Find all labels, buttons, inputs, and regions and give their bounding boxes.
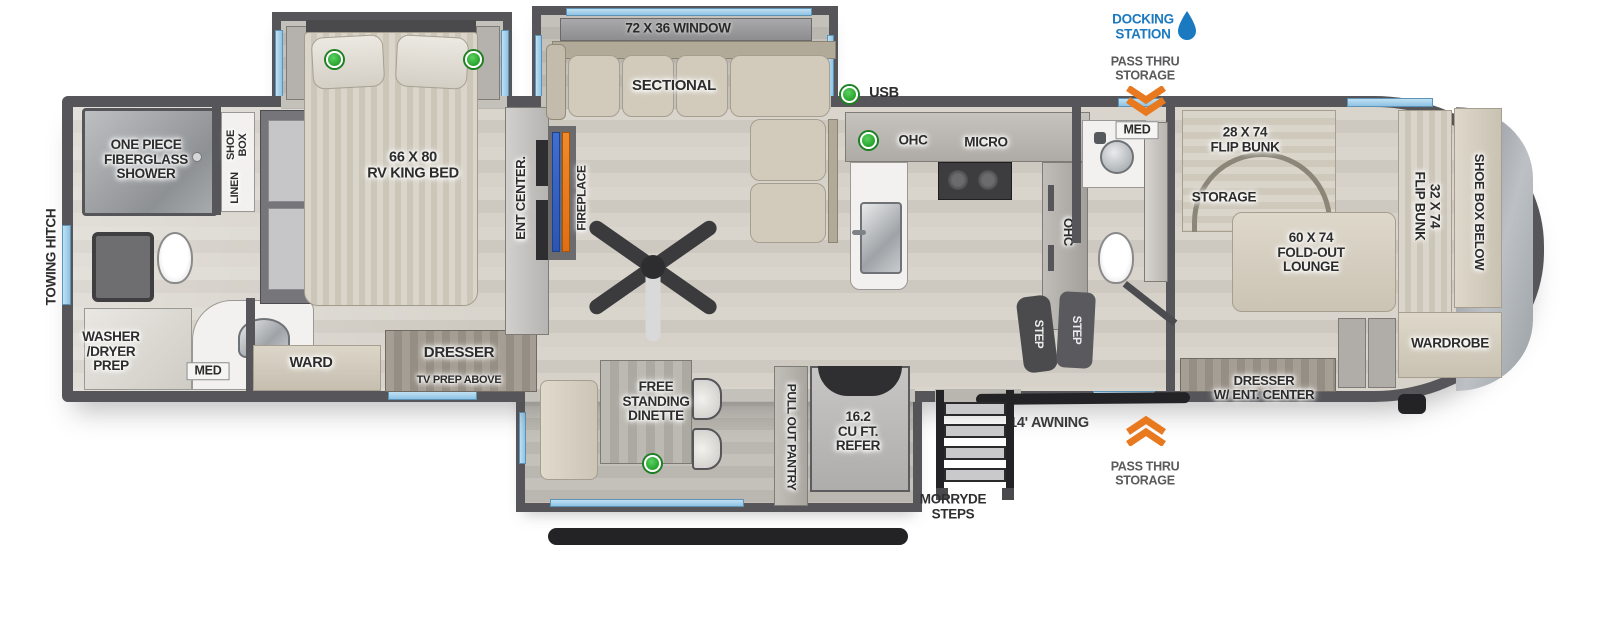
sectional-chaise-edge	[828, 119, 838, 243]
ohc-dot	[860, 132, 877, 149]
morryde-steps-rail-right	[1006, 390, 1014, 488]
sectional-chaise1	[750, 119, 826, 181]
midbath-left-wall	[1072, 107, 1081, 243]
stabilizer-foot	[1398, 394, 1426, 414]
morryde-step-tread3	[944, 446, 1006, 460]
dresser-label-line2: TV PREP ABOVE	[417, 375, 502, 387]
sectional-armrest	[546, 44, 566, 120]
fireplace-flame-strip	[562, 132, 570, 252]
living-window-top	[566, 8, 812, 16]
pass-thru-bottom-label: PASS THRU STORAGE	[1111, 461, 1180, 488]
kitchen-sink	[860, 202, 902, 274]
washer-dryer-label: WASHER /DRYER PREP	[82, 330, 139, 374]
step2-label: STEP	[1070, 316, 1082, 345]
sectional-chaise2	[750, 183, 826, 243]
bunkroom-top-window	[1347, 98, 1433, 107]
usb-dot	[841, 86, 858, 103]
kitchen-faucet	[852, 230, 866, 235]
awning-bar-left	[548, 528, 908, 545]
side-ohc-handle2	[1048, 245, 1054, 271]
docking-station-label: DOCKING STATION	[1112, 12, 1174, 41]
morryde-steps-label: MORRYDE STEPS	[920, 492, 986, 521]
refer-label: 16.2 CU FT. REFER	[836, 410, 880, 454]
bath-bedroom-wall-upper	[212, 107, 221, 215]
living-window-left	[535, 35, 542, 100]
dresser-tv-label: DRESSER TV PREP ABOVE	[417, 330, 502, 402]
bed-usb-dot-left	[326, 51, 343, 68]
pass-thru-up-arrow-icon	[1124, 414, 1168, 446]
shower-drain	[192, 152, 202, 162]
flip-bunk-28-label: 28 X 74 FLIP BUNK	[1210, 125, 1279, 154]
dresser-label-line1: DRESSER	[417, 345, 502, 361]
wardrobe-label: WARDROBE	[1411, 337, 1489, 352]
mid-med-label: MED	[1116, 121, 1159, 139]
king-bed-label: 66 X 80 RV KING BED	[367, 150, 459, 181]
pillow-left	[311, 34, 386, 90]
step1-label: STEP	[1032, 320, 1044, 349]
ent-center-component	[536, 200, 548, 260]
bunkroom-cabinet-door1	[1338, 318, 1366, 388]
dresser-ent-label: DRESSER W/ ENT. CENTER	[1214, 374, 1315, 402]
morryde-step-tread2	[944, 424, 1006, 438]
mid-toilet	[1098, 232, 1134, 284]
water-drop-icon	[1176, 10, 1198, 42]
micro-label: MICRO	[964, 136, 1008, 151]
rear-toilet	[157, 232, 193, 284]
dinette-label: FREE STANDING DINETTE	[622, 380, 689, 424]
dinette-window-left	[519, 412, 526, 464]
morryde-step-tread1	[944, 402, 1006, 416]
sectional-corner	[730, 55, 830, 117]
ohc-top-label: OHC	[898, 134, 927, 149]
shower-label: ONE PIECE FIBERGLASS SHOWER	[104, 138, 188, 182]
dinette-bench	[540, 380, 598, 480]
dinette-chair2	[692, 428, 722, 470]
pillow-right	[395, 34, 470, 90]
bath-window-frame	[92, 232, 154, 302]
pass-thru-down-arrow-icon	[1124, 86, 1168, 118]
ent-center-label: ENT CENTER.	[514, 156, 528, 239]
dinette-window-bottom	[550, 499, 744, 507]
bedroom-window-right	[501, 30, 509, 100]
dinette-usb-dot	[644, 455, 661, 472]
sectional-label: SECTIONAL	[632, 78, 716, 94]
dinette-chair1	[692, 378, 722, 420]
fan-hub	[641, 255, 665, 279]
rear-med-label: MED	[187, 362, 230, 380]
bed-usb-dot-right	[465, 51, 482, 68]
stove-burner1	[948, 170, 968, 190]
rear-wall-window	[62, 225, 71, 305]
storage-label: STORAGE	[1192, 191, 1256, 206]
ent-center-tv	[536, 140, 548, 186]
awning-label: 14' AWNING	[1009, 416, 1089, 432]
morryde-steps-rail-left	[936, 390, 944, 488]
shoe-box-below-label: SHOE BOX BELOW	[1472, 154, 1486, 270]
towing-hitch-label: TOWING HITCH	[45, 209, 60, 306]
lounge-label: 60 X 74 FOLD-OUT LOUNGE	[1277, 231, 1344, 275]
morryde-step-tread4	[944, 468, 1006, 482]
shoe-box-label: SHOE BOX	[226, 130, 250, 160]
fireplace-screen	[552, 132, 560, 252]
ward-label: WARD	[289, 356, 332, 372]
rv-floorplan-diagram: MED ONE PIECE FIBERGLASS SHOWER WASHER /…	[0, 0, 1600, 618]
fireplace-label: FIREPLACE	[576, 165, 589, 230]
pantry-label: PULL OUT PANTRY	[785, 384, 798, 491]
morryde-foot-right	[1002, 488, 1014, 500]
pass-thru-top-label: PASS THRU STORAGE	[1111, 56, 1180, 83]
sectional-seat1	[568, 55, 620, 117]
bedroom-window-left	[275, 30, 283, 100]
stove-burner2	[978, 170, 998, 190]
midbath-faucet	[1094, 132, 1106, 144]
fan-blade-5	[646, 269, 661, 341]
midbath-tall-cabinet	[1144, 122, 1168, 282]
bunkroom-cabinet-door2	[1368, 318, 1396, 388]
side-ohc-handle1	[1048, 185, 1054, 211]
flip-bunk-32-label: 32 X 74 FLIP BUNK	[1412, 171, 1441, 240]
usb-label: USB	[869, 86, 899, 102]
window-72-label: 72 X 36 WINDOW	[625, 22, 730, 37]
midbath-sink	[1100, 140, 1134, 174]
linen-label: LINEN	[230, 172, 242, 204]
